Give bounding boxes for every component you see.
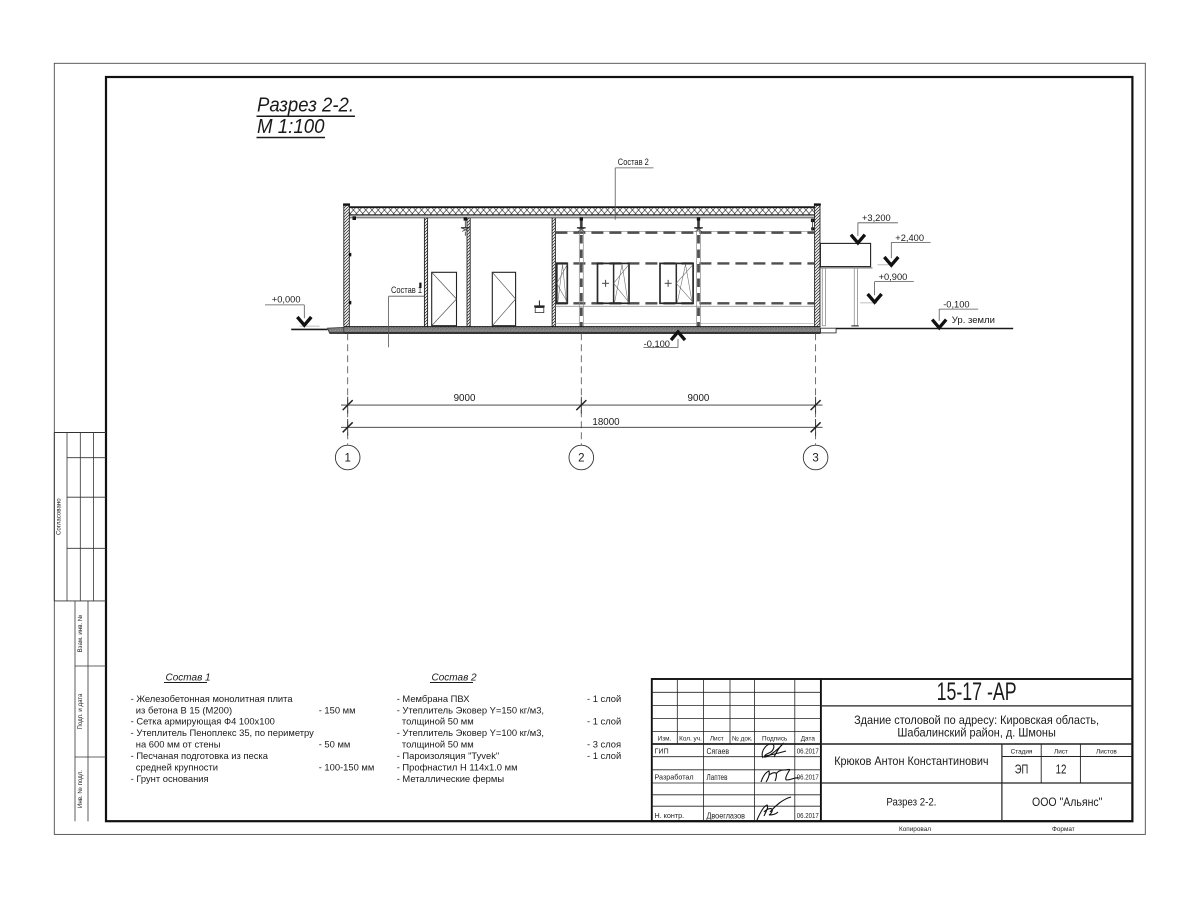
svg-text:- Мембрана ПВХ: - Мембрана ПВХ	[397, 693, 471, 704]
svg-text:Состав 2: Состав 2	[432, 673, 478, 684]
svg-text:Разрез 2-2.: Разрез 2-2.	[886, 797, 936, 809]
svg-text:толщиной 50 мм: толщиной 50 мм	[397, 739, 474, 750]
svg-text:Подп. и дата: Подп. и дата	[77, 693, 84, 730]
svg-text:06.2017: 06.2017	[797, 749, 819, 756]
svg-text:- Утеплитель Эковер Y=100 кг/м: - Утеплитель Эковер Y=100 кг/м3,	[397, 727, 544, 738]
svg-text:Двоеглазов: Двоеглазов	[707, 811, 746, 821]
svg-text:12: 12	[1056, 761, 1067, 776]
svg-text:- 50 мм: - 50 мм	[319, 739, 351, 750]
svg-text:- Утеплитель Эковер Y=150 кг/м: - Утеплитель Эковер Y=150 кг/м3,	[397, 704, 544, 715]
svg-text:Формат: Формат	[1052, 826, 1075, 833]
svg-text:- Железобетонная монолитная п: - Железобетонная монолитная плита	[131, 693, 294, 704]
svg-text:- 100-150 мм: - 100-150 мм	[319, 762, 375, 773]
svg-text:+0,000: +0,000	[272, 295, 301, 305]
svg-text:- 1 слой: - 1 слой	[587, 693, 621, 704]
svg-text:Кол. уч.: Кол. уч.	[679, 736, 702, 743]
svg-text:Состав 2: Состав 2	[618, 157, 649, 167]
svg-text:Н. контр.: Н. контр.	[655, 811, 685, 820]
svg-text:+3,200: +3,200	[862, 213, 891, 223]
svg-text:Согласовано: Согласовано	[56, 498, 63, 535]
svg-text:06.2017: 06.2017	[797, 775, 819, 782]
svg-text:- Песчаная подготовка из песка: - Песчаная подготовка из песка	[131, 750, 269, 761]
svg-text:Дата: Дата	[801, 736, 816, 743]
svg-text:Ур. земли: Ур. земли	[952, 315, 995, 326]
svg-text:3: 3	[812, 453, 818, 465]
svg-text:Сягаев: Сягаев	[707, 746, 730, 756]
svg-text:Лист: Лист	[710, 736, 724, 743]
svg-text:Взам. инв. №: Взам. инв. №	[77, 615, 84, 653]
svg-text:- 150 мм: - 150 мм	[319, 704, 356, 715]
svg-text:Состав 1: Состав 1	[391, 285, 422, 295]
svg-text:№ док.: № док.	[732, 736, 753, 743]
svg-text:Стадия: Стадия	[1011, 749, 1033, 756]
svg-text:Копировал: Копировал	[899, 826, 931, 833]
svg-text:толщиной 50 мм: толщиной 50 мм	[397, 716, 474, 727]
svg-text:9000: 9000	[454, 393, 476, 404]
svg-text:Лист: Лист	[1054, 749, 1068, 756]
svg-text:Подпись: Подпись	[762, 736, 788, 743]
svg-text:18000: 18000	[592, 417, 620, 428]
svg-text:М 1:100: М 1:100	[257, 115, 325, 138]
svg-text:Изм.: Изм.	[658, 736, 672, 743]
svg-text:15-17 -АР: 15-17 -АР	[937, 678, 1017, 706]
svg-text:- Пароизоляция "Tyvek": - Пароизоляция "Tyvek"	[397, 750, 500, 761]
svg-text:- Профнастил Н 114х1.0 мм: - Профнастил Н 114х1.0 мм	[397, 762, 518, 773]
svg-text:1: 1	[344, 453, 350, 465]
svg-text:ЭП: ЭП	[1015, 761, 1029, 776]
svg-text:ООО "Альянс": ООО "Альянс"	[1032, 795, 1102, 809]
svg-text:ГИП: ГИП	[655, 746, 669, 755]
svg-text:Разрез 2-2.: Разрез 2-2.	[257, 94, 354, 117]
svg-text:2: 2	[578, 453, 584, 465]
svg-text:- 1 слой: - 1 слой	[587, 750, 621, 761]
svg-text:Разработал: Разработал	[655, 773, 694, 782]
svg-text:Листов: Листов	[1096, 749, 1117, 756]
svg-text:Инв. № подл.: Инв. № подл.	[77, 770, 84, 808]
svg-text:- Утеплитель Пеноплекс 35, по: - Утеплитель Пеноплекс 35, по периметру	[131, 727, 315, 738]
svg-text:-0,100: -0,100	[943, 299, 969, 309]
svg-text:06.2017: 06.2017	[797, 813, 819, 820]
svg-text:Состав 1: Состав 1	[166, 673, 211, 684]
svg-text:+2,400: +2,400	[895, 233, 924, 243]
svg-text:средней крупности: средней крупности	[131, 762, 218, 773]
svg-text:- Грунт основания: - Грунт основания	[131, 773, 209, 784]
svg-text:Крюков Антон Константинович: Крюков Антон Константинович	[834, 754, 988, 768]
svg-text:из бетона В 15 (М200): из бетона В 15 (М200)	[131, 704, 233, 715]
svg-text:на 600 мм от стены: на 600 мм от стены	[131, 739, 221, 750]
svg-text:- Металлические фермы: - Металлические фермы	[397, 773, 505, 784]
svg-text:Шабалинский район, д. Шмоны: Шабалинский район, д. Шмоны	[897, 726, 1055, 740]
svg-text:Лаптев: Лаптев	[707, 772, 728, 782]
svg-text:- Сетка армирующая Ф4 100х100: - Сетка армирующая Ф4 100х100	[131, 716, 275, 727]
svg-text:9000: 9000	[688, 393, 710, 404]
svg-text:- 1 слой: - 1 слой	[587, 716, 621, 727]
svg-text:- 3 слоя: - 3 слоя	[587, 739, 621, 750]
svg-text:+0,900: +0,900	[879, 272, 908, 282]
